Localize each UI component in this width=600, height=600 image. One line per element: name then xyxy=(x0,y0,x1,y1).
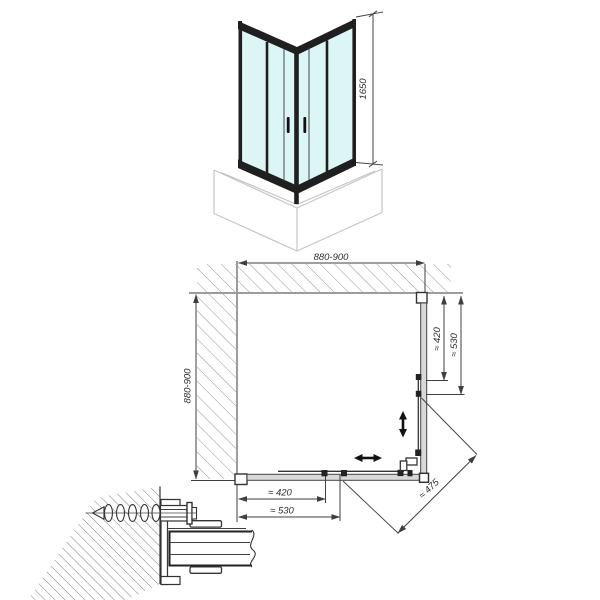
slide-direction-vertical-icon xyxy=(399,411,407,438)
technical-drawing: 1650 880-900 880-900 xyxy=(0,0,600,600)
door-right-label: ≈ 420 xyxy=(432,326,443,350)
mount-detail xyxy=(28,487,255,600)
slide-direction-horizontal-icon xyxy=(354,454,382,462)
wall-hatch-top xyxy=(238,264,451,292)
wall-bracket-right xyxy=(417,293,428,304)
wall-bracket-bottom xyxy=(235,474,247,485)
depth-label: 880-900 xyxy=(183,368,194,404)
depth-dimension: 880-900 xyxy=(183,295,197,480)
roller xyxy=(415,450,421,457)
front-view: 1650 xyxy=(214,11,383,251)
glass-panel-section xyxy=(168,521,256,574)
plan-view: 880-900 880-900 xyxy=(183,252,478,534)
roller xyxy=(408,470,413,476)
door-handle-left xyxy=(287,117,290,133)
technical-drawing-page: 1650 880-900 880-900 xyxy=(0,0,600,600)
door-handle-right xyxy=(303,117,306,133)
door-bottom-label: ≈ 420 xyxy=(268,488,292,499)
side-panel-right xyxy=(406,293,465,476)
door-dimension-right: ≈ 420 xyxy=(432,296,444,381)
entry-diagonal-dimension: ≈ 475 xyxy=(343,398,477,534)
height-label: 1650 xyxy=(358,78,369,100)
roller xyxy=(416,391,422,397)
outer-post-right xyxy=(352,19,356,166)
opening-bottom-label: ≈ 530 xyxy=(270,506,294,517)
roller xyxy=(322,470,328,476)
outer-post-left xyxy=(239,21,243,168)
opening-right-label: ≈ 530 xyxy=(449,332,460,356)
opening-dimension-right: ≈ 530 xyxy=(449,296,461,395)
width-label: 880-900 xyxy=(314,252,350,263)
cover-strip-top xyxy=(190,521,222,527)
corner-joint xyxy=(420,473,429,482)
side-panel-bottom xyxy=(235,461,420,521)
wall-hatch-left xyxy=(197,264,237,479)
roller xyxy=(341,470,347,476)
detail-wall-hatch xyxy=(28,487,160,600)
roller xyxy=(416,374,422,380)
corner-post xyxy=(294,47,299,204)
door-knob-right xyxy=(406,458,417,465)
cover-strip-bottom xyxy=(190,567,222,573)
opening-dimension-bottom: ≈ 530 xyxy=(239,506,341,518)
door-knob-bottom xyxy=(400,461,407,471)
height-dimension: 1650 xyxy=(356,11,383,167)
